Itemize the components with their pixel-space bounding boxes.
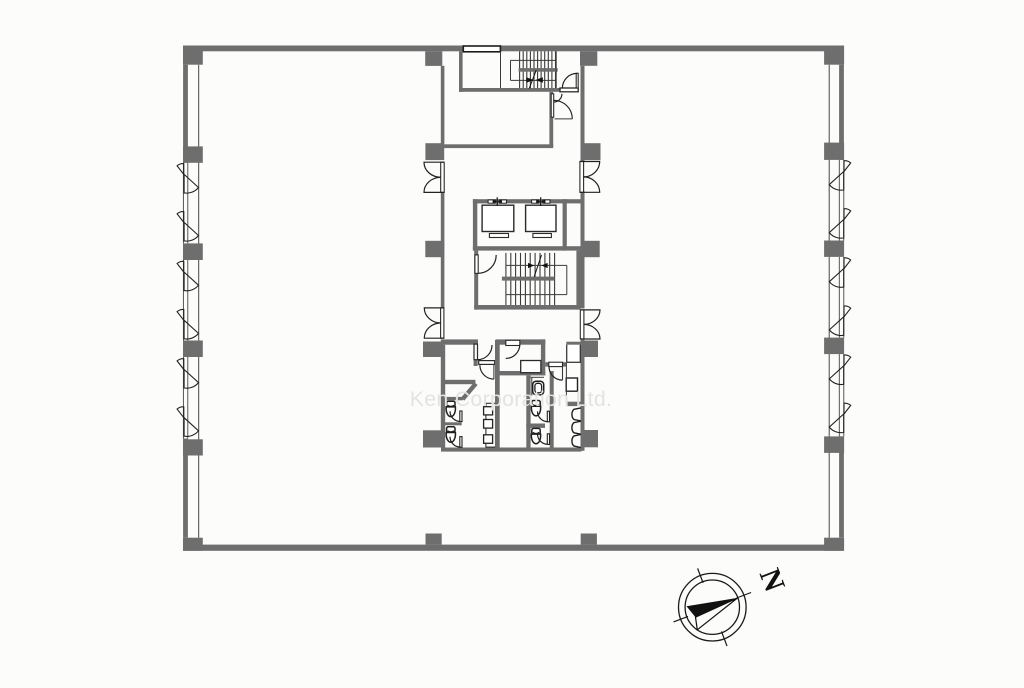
svg-text:Ken Corporation Ltd.: Ken Corporation Ltd. <box>410 387 613 411</box>
